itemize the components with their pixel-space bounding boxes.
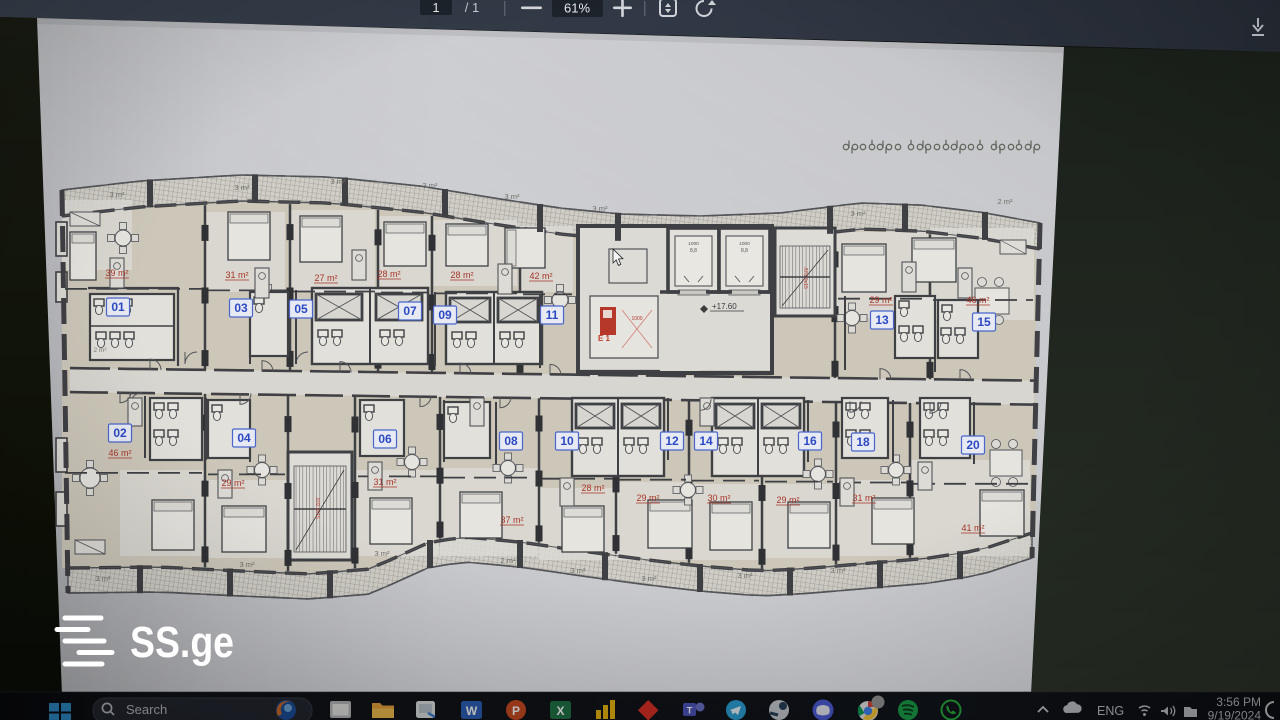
svg-text:SS.ge: SS.ge xyxy=(130,618,234,667)
